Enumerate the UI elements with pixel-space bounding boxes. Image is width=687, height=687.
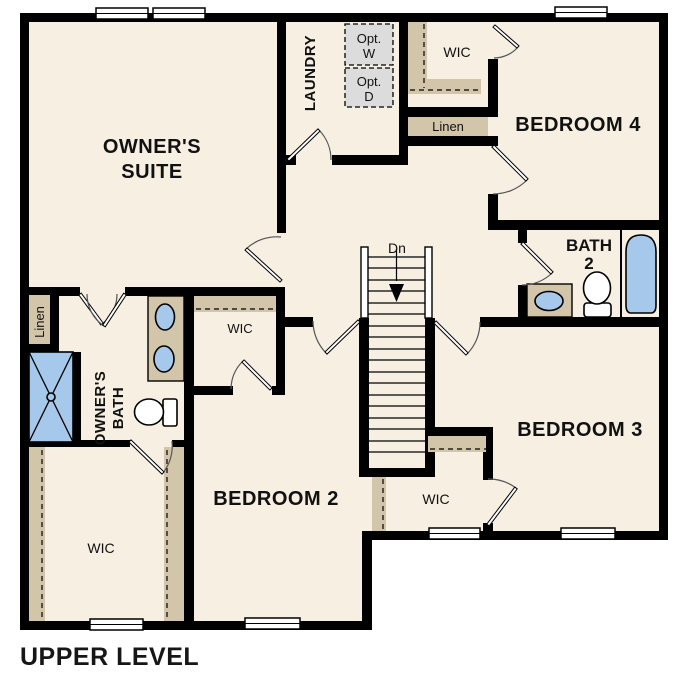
toilet [584,272,612,317]
plan-caption: UPPER LEVEL [20,643,199,671]
bath2-label: 2 [584,254,593,273]
window [555,7,607,18]
linen-label: Linen [32,306,47,338]
opt-washer-label: Opt. [357,31,382,46]
stairs-down-label: Dn [388,240,406,256]
window [90,619,143,630]
window [429,528,480,539]
window [245,618,300,629]
laundry-label: LAUNDRY [302,35,319,111]
bedroom2-label: BEDROOM 2 [213,488,339,510]
window [153,8,205,19]
owners-suite-label: SUITE [121,161,182,183]
wic-label: WIC [87,540,114,556]
bedroom4-label: BEDROOM 4 [515,114,641,136]
owners-suite-label: OWNER'S [103,136,201,158]
wic-label: WIC [443,44,470,60]
wic-label: WIC [227,321,252,336]
owners-bath-label: OWNER'S [92,371,109,446]
vanity [527,284,572,317]
floor-plan-page: OWNER'S SUITE LAUNDRY Opt. W Opt. D WIC … [0,0,687,687]
opt-dryer-label: D [364,89,373,104]
double-vanity [148,296,184,381]
bath2-label: BATH [566,236,612,255]
opt-washer-label: W [363,46,376,61]
owners-bath-label: BATH [110,387,127,430]
window [561,528,615,539]
window [96,8,148,19]
bedroom3-label: BEDROOM 3 [517,419,643,441]
shower [29,352,73,442]
linen-label: Linen [432,119,464,134]
wic-label: WIC [422,491,449,507]
floor-plan-drawing: OWNER'S SUITE LAUNDRY Opt. W Opt. D WIC … [0,0,687,687]
toilet [135,399,178,426]
opt-dryer-label: Opt. [357,74,382,89]
